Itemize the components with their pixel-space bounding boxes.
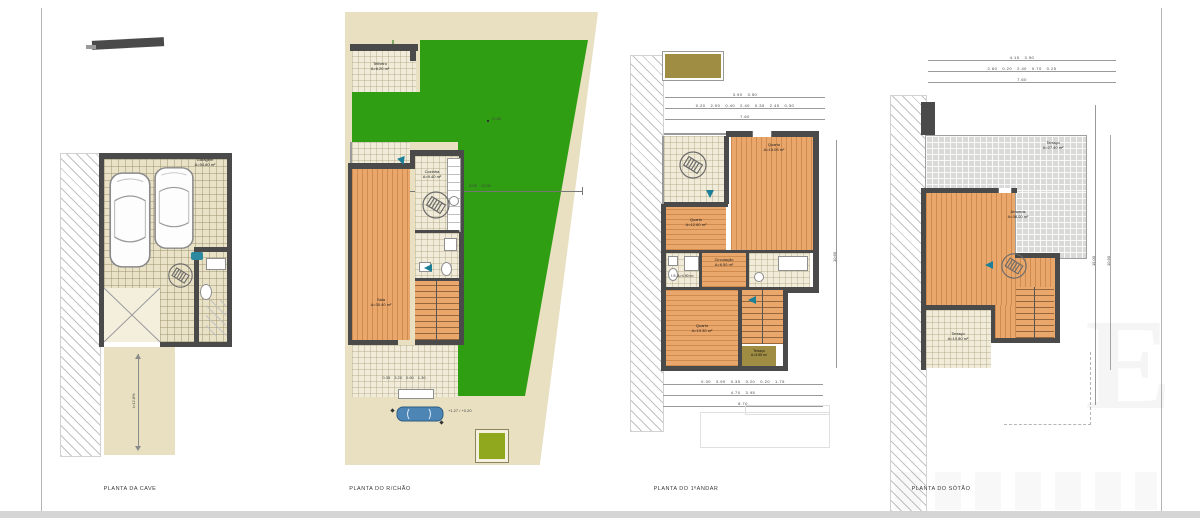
room-label-quarto1: Quarto A=12.60 m²: [676, 218, 716, 228]
plan-title-andar: PLANTA DO 1ºANDAR: [636, 486, 736, 492]
spiral-stair-icon: [678, 150, 708, 180]
room-area: A=6.20 m²: [356, 67, 404, 72]
dim-right-label: 15.00: [1092, 256, 1096, 266]
room-label-terraco-sup: Terraço A=27.40 m²: [1028, 141, 1078, 151]
stair-run-icon: [1016, 287, 1054, 338]
wall: [991, 310, 995, 343]
garden-level-label: +1.00: [491, 117, 501, 121]
room-label-circulacao2: Circulação A=6.50 m²: [700, 258, 748, 268]
room-area: A=38.00 m²: [996, 215, 1040, 220]
spiral-stair-icon: [421, 190, 451, 220]
room-area: A=3.55 m²: [742, 353, 776, 357]
wall: [783, 293, 788, 371]
level-dot: [487, 120, 489, 122]
dim-chain: 7.60: [665, 115, 825, 120]
room-area: A=19.30 m²: [682, 329, 722, 334]
wall: [194, 252, 199, 342]
dim-chain: 0.20 2.90 0.40 2.40 0.35 2.45 0.30: [665, 104, 825, 109]
arrowhead: [135, 446, 141, 454]
sheet-border-left: [41, 8, 42, 511]
counter-fixture: [206, 258, 226, 270]
terraco-sup-floor: [1015, 192, 1087, 259]
watermark-letter: E: [1085, 300, 1172, 430]
site-wall-bar: [92, 37, 164, 50]
room-area: A=12.60 m²: [676, 223, 716, 228]
room-label-sala: Sala A=30.40 m²: [358, 298, 404, 308]
dim-chain: 7.60: [928, 78, 1116, 83]
ramp-void: [104, 288, 160, 342]
roof-panel: [663, 52, 723, 80]
room-area: A=30.40 m²: [358, 303, 404, 308]
room-label-is: I.S. A=4.90 m²: [666, 274, 699, 278]
neighbour-hatch-cave: [60, 153, 101, 457]
watermark-band: [895, 472, 1157, 510]
room-label-cozinha: Cozinha A=9.40 m²: [416, 170, 448, 180]
sala-floor: [352, 169, 410, 340]
lower-floor-ghost-outline: [700, 412, 830, 448]
dim-chain: 2.60 0.20 2.40 0.70 0.25: [928, 67, 1116, 72]
wall: [995, 338, 1060, 343]
car-icon: [153, 166, 195, 250]
wall: [410, 51, 416, 61]
entry-arrow-icon: [706, 190, 714, 202]
patio-dims: 0.35 3.20 0.60 1.30: [354, 376, 454, 380]
wall: [350, 44, 418, 51]
room-area: A=6.50 m²: [700, 263, 748, 268]
lower-floor-ghost-outline: [745, 405, 830, 415]
room-label-terraco: Terraço A=3.55 m²: [742, 349, 776, 357]
dim-right-label: 10.60: [1107, 256, 1111, 266]
dim-right-label: 10.60: [833, 252, 837, 262]
wall: [813, 131, 819, 293]
wall: [661, 366, 788, 371]
entry-level-label: +1.27 / +0.20: [448, 409, 472, 413]
sink-fixture: [668, 256, 678, 266]
arrowhead: [135, 351, 141, 359]
entry-arrow-icon: [420, 264, 432, 272]
stair-run-icon: [415, 281, 459, 340]
entry-arrow-icon: [981, 261, 993, 269]
sink-fixture: [191, 252, 203, 260]
sheet-footer-strip: [0, 511, 1200, 518]
room-label-terraco-inf: Terraço A=10.80 m²: [936, 332, 980, 342]
dim-chain: 0.30 3.90 0.35 3.20 0.20 1.75: [663, 380, 823, 385]
ramp-slope-label: i=12.8%: [132, 393, 136, 408]
stair-rail: [762, 290, 763, 344]
wall: [724, 136, 729, 204]
room-label-quarto2: Quarto A=15.05 m²: [752, 143, 796, 153]
lower-floor-dashed-outline: [1004, 352, 1091, 425]
room-area: A=9.40 m²: [416, 175, 448, 180]
toilet-fixture: [200, 284, 212, 300]
tub-fixture: [778, 256, 808, 271]
stair-rail: [436, 281, 437, 340]
spiral-stair-icon: [1000, 252, 1028, 280]
room-label-telheiro: Telheiro A=6.20 m²: [356, 62, 404, 72]
neighbour-hatch-andar: [630, 55, 664, 432]
thin-wall: [662, 136, 664, 204]
shrub-hatch: [206, 300, 226, 336]
ramp-dimension-line: [138, 354, 139, 448]
room-area: A=15.05 m²: [752, 148, 796, 153]
plan-title-rchao: PLANTA DO R/CHÃO: [335, 486, 425, 492]
stair-rail: [1034, 287, 1035, 338]
quarto1-floor: [666, 207, 726, 250]
room-area: A=27.40 m²: [1028, 146, 1078, 151]
dim-tick: [582, 187, 583, 195]
dim-chain: 4.15 3.50: [928, 56, 1116, 61]
room-area: A=10.80 m²: [936, 337, 980, 342]
quarto2-floor: [731, 137, 813, 250]
car-blue-icon: [396, 405, 444, 423]
spiral-stair-icon: [167, 262, 194, 289]
room-name: I.S.: [671, 274, 676, 278]
room-label-quarto3: Quarto A=19.30 m²: [682, 324, 722, 334]
sink-fixture: [754, 272, 764, 282]
washer-fixture: [444, 238, 457, 251]
dim-chain: 4.70 3.95: [663, 391, 823, 396]
wall: [1055, 258, 1060, 343]
room-area: A=4.90 m²: [677, 274, 693, 278]
ramp-x-lines: [104, 288, 160, 342]
car-icon: [108, 171, 152, 269]
thin-wall: [664, 133, 728, 135]
floorplan-sheet: Garagem A=54.80 m² i=12.8% PLANTA DA CAV…: [0, 0, 1200, 518]
shower-fixture: [684, 256, 699, 271]
utility-box: [476, 430, 508, 462]
wall: [921, 102, 935, 135]
toilet-fixture: [441, 262, 452, 276]
dim-chain: 3.90 3.50: [665, 93, 825, 98]
site-wall-stub: [86, 45, 96, 49]
plan-title-cave: PLANTA DA CAVE: [90, 486, 170, 492]
entry-arrow-icon: [744, 296, 756, 304]
entry-step: [398, 389, 434, 399]
driveway: [104, 347, 175, 455]
room-label-arrumos: Arrumos A=38.00 m²: [996, 210, 1040, 220]
